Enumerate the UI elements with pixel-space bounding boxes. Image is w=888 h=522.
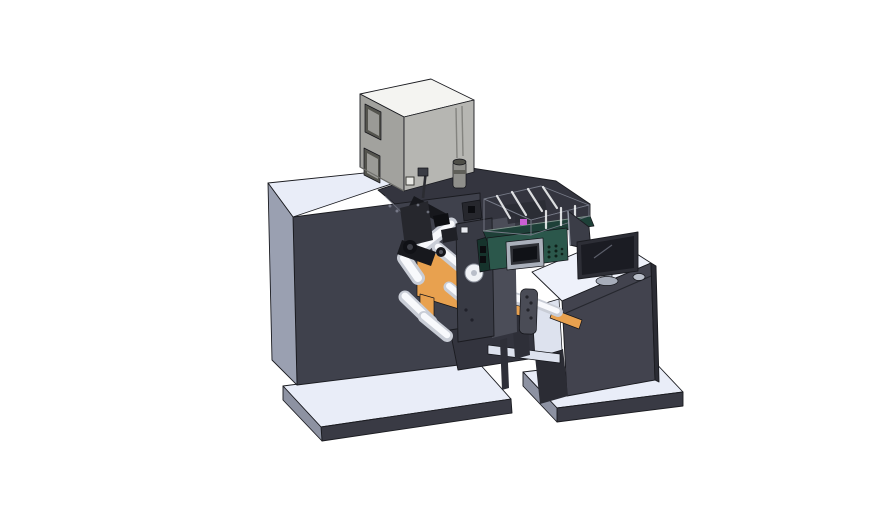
plate-cutout (461, 227, 468, 233)
roller-end-hub (471, 270, 477, 276)
coder-display (506, 238, 544, 270)
connector (480, 246, 486, 253)
power-knob (453, 159, 466, 188)
vent-slit (456, 108, 457, 158)
latch-square (406, 177, 414, 185)
vent-slit (462, 106, 463, 156)
monitor-stand-base (596, 277, 618, 286)
connector (480, 256, 486, 263)
mechanism-cap (418, 168, 428, 176)
sensor-handle (519, 289, 538, 335)
machine-render (0, 0, 888, 522)
cad-viewport (0, 0, 888, 522)
mouse (633, 274, 645, 281)
cover-internal-magenta (520, 219, 527, 225)
sensor-eye (468, 206, 475, 213)
